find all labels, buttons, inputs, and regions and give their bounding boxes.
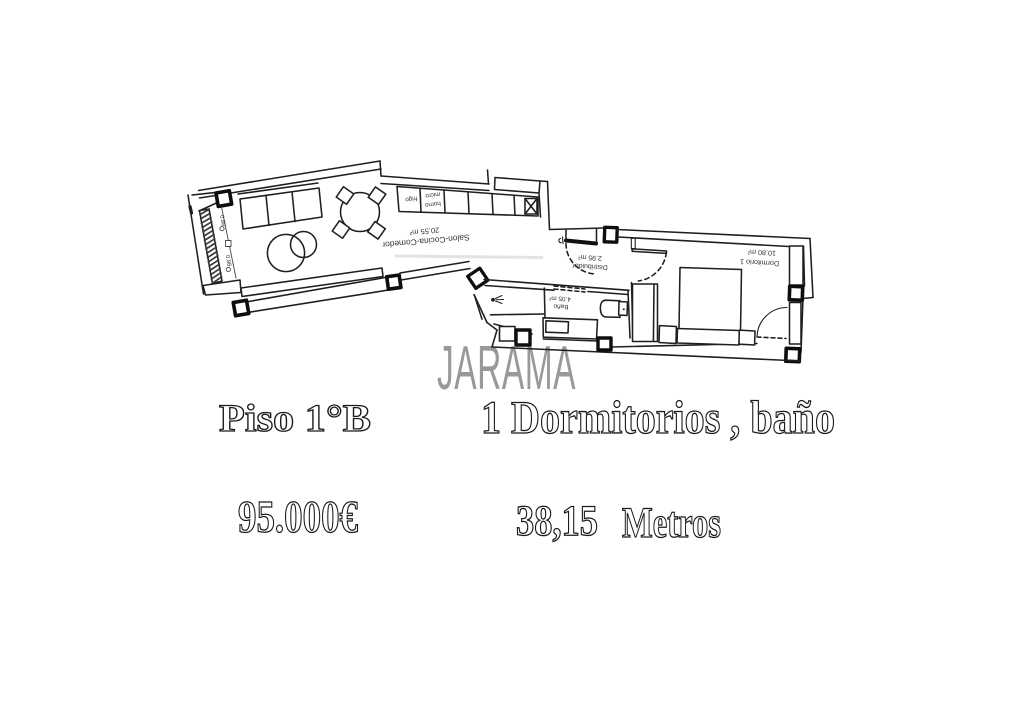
- svg-text:95.000€: 95.000€: [238, 492, 358, 542]
- svg-text:Piso 1°B: Piso 1°B: [219, 397, 371, 440]
- svg-text:4.05 m²: 4.05 m²: [549, 294, 571, 302]
- svg-text:Metros: Metros: [622, 500, 721, 547]
- svg-text:2.95 m²: 2.95 m²: [577, 253, 602, 261]
- svg-text:38,15: 38,15: [516, 498, 598, 545]
- svg-text:10.80 m²: 10.80 m²: [747, 247, 776, 258]
- svg-text:Baño: Baño: [553, 302, 569, 310]
- svg-text:1 Dormitorios , baño: 1 Dormitorios , baño: [481, 392, 835, 444]
